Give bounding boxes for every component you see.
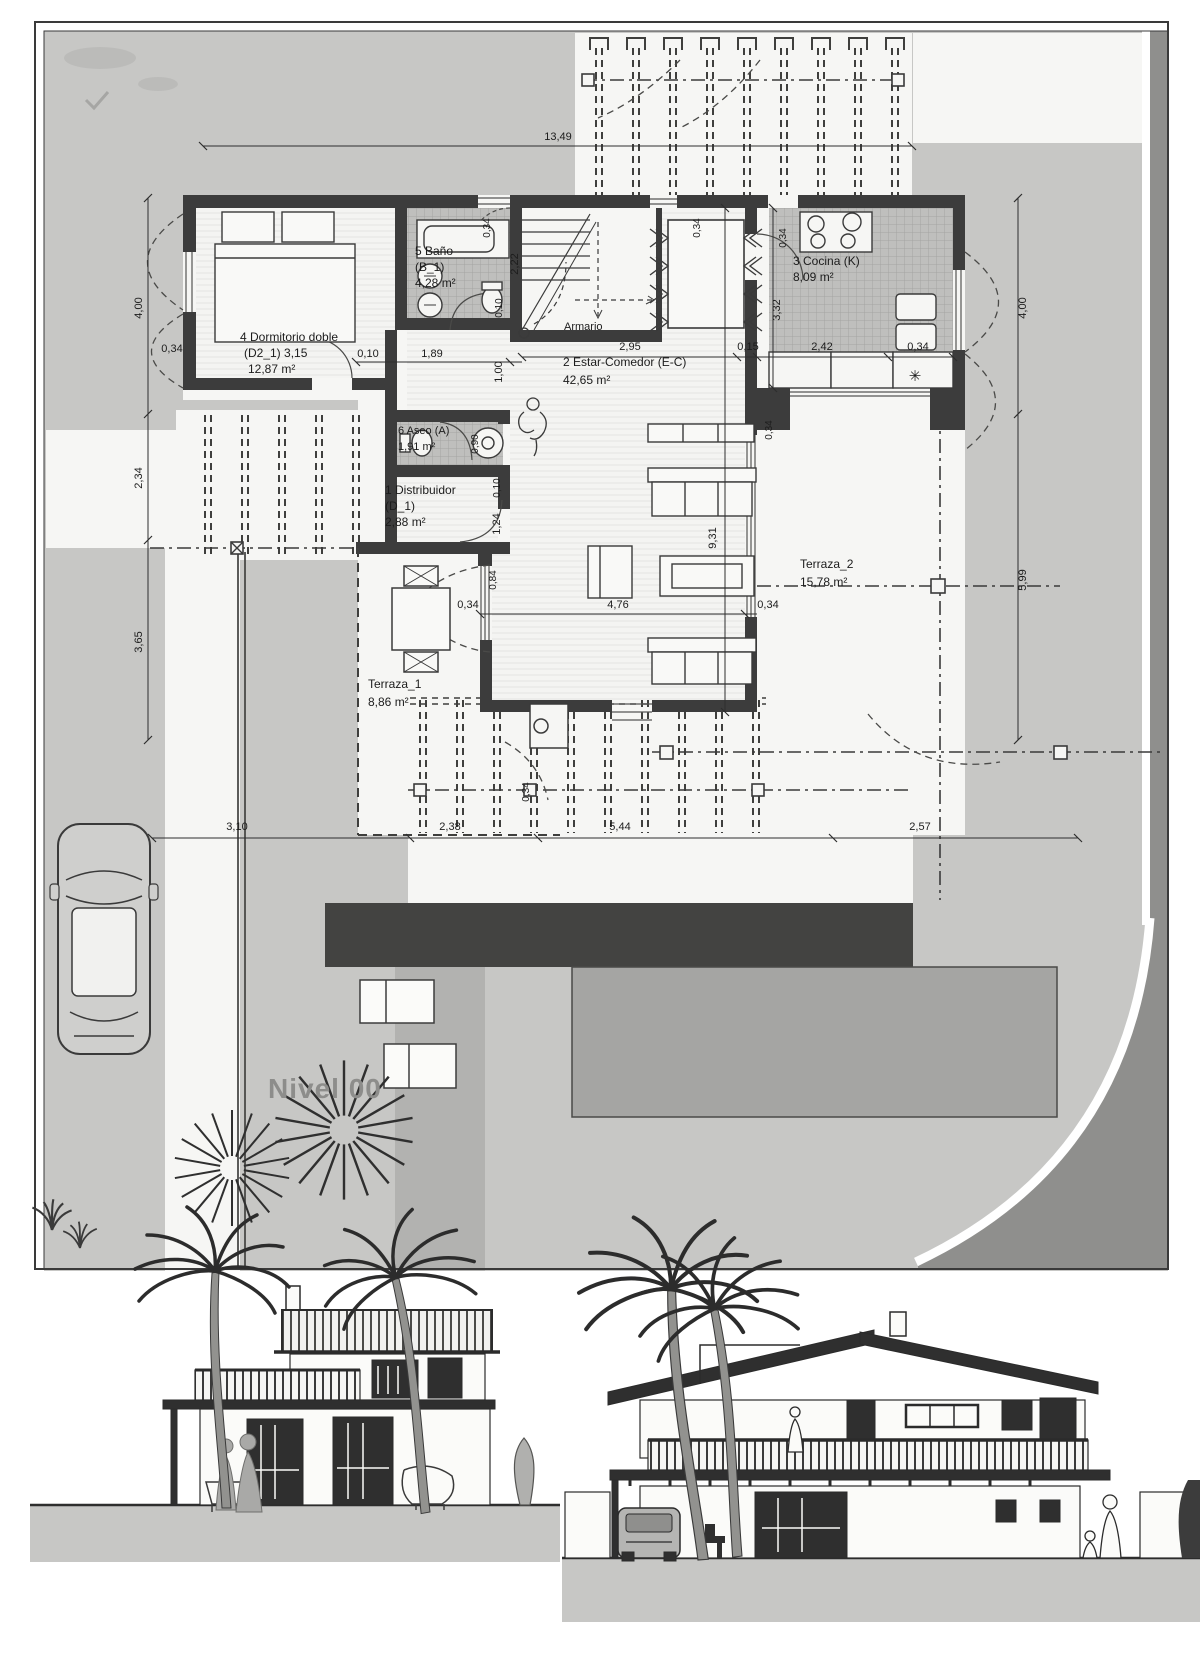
dim-kitchen-4: 0,34 — [907, 341, 928, 353]
sun-lounger — [384, 1044, 456, 1088]
label-dormitorio: 4 Dormitorio doble — [240, 330, 338, 344]
car-front-view — [618, 1508, 680, 1561]
shed-roof-left — [608, 1330, 874, 1405]
label-distribuidor: 1 Distribuidor — [385, 483, 456, 497]
striped-roof — [282, 1310, 492, 1352]
label-distribuidor-code: (D_1) — [385, 499, 415, 513]
label-aseo: 6 Aseo (A) — [398, 425, 449, 437]
label-estar-area: 42,65 m² — [563, 373, 610, 387]
dim-right-bottom: 5,99 — [1017, 569, 1029, 590]
elevation-left — [30, 1286, 560, 1562]
dim-stair-width: 1,00 — [493, 361, 505, 382]
label-terraza1-area: 8,86 m² — [368, 695, 409, 709]
shed-roof-right — [860, 1332, 1098, 1394]
appliance-symbol: ✳ — [909, 368, 922, 385]
dim-right-top: 4,00 — [1017, 297, 1029, 318]
dim-kitchen-door: 0,34 — [778, 228, 789, 248]
dim-terrace-right: 0,34 — [757, 599, 778, 611]
dim-terrace-step: 0,84 — [488, 570, 499, 590]
dim-shower: 0,90 — [470, 434, 481, 454]
dim-bottom-2: 2,38 — [439, 821, 460, 833]
car-top-view — [50, 824, 158, 1054]
dim-total-width: 13,49 — [544, 131, 572, 143]
label-armario: Armario — [564, 321, 603, 333]
label-terraza2-area: 15,78 m² — [800, 575, 847, 589]
dim-left-top: 4,00 — [133, 297, 145, 318]
cypress-plant — [514, 1438, 534, 1505]
sun-lounger — [360, 980, 434, 1023]
bed — [215, 212, 355, 342]
dim-left-middle: 2,34 — [133, 467, 145, 488]
dim-bedroom-bath: 1,89 — [421, 348, 442, 360]
sliding-door — [755, 1492, 847, 1558]
dim-bottom-4: 2,57 — [909, 821, 930, 833]
label-bano: 5 Baño — [415, 244, 453, 258]
south-pillar — [530, 704, 568, 748]
upper-window — [428, 1358, 462, 1398]
pool — [572, 967, 1057, 1117]
dim-estar-depth: 9,31 — [707, 527, 719, 548]
curb-stripe — [1142, 31, 1150, 925]
label-dormitorio-code: (D2_1) 3,15 — [244, 346, 308, 360]
dim-left-wall: 0,34 — [161, 343, 182, 355]
dim-opening: 0,34 — [521, 782, 532, 802]
label-terraza1: Terraza_1 — [368, 677, 422, 691]
upper-window — [1002, 1400, 1032, 1430]
label-estar: 2 Estar-Comedor (E-C) — [563, 355, 686, 369]
dim-terraza2-wall: 0,34 — [764, 420, 775, 440]
dim-bath-wall: 0,10 — [494, 298, 505, 318]
dim-terrace-left: 0,34 — [457, 599, 478, 611]
label-cocina: 3 Cocina (K) — [793, 254, 860, 268]
dim-bath-depth: 2,22 — [509, 253, 521, 274]
label-terraza2: Terraza_2 — [800, 557, 854, 571]
dim-kitchen-3: 2,42 — [811, 341, 832, 353]
label-aseo-area: 1,91 m² — [398, 441, 436, 453]
dim-kitchen-1: 2,95 — [619, 341, 640, 353]
balcony-railing — [648, 1440, 1088, 1470]
dim-terrace-width: 4,76 — [607, 599, 628, 611]
dim-stair-door: 0,34 — [482, 218, 493, 238]
dim-bedroom-gap: 0,10 — [357, 348, 378, 360]
upper-door — [1040, 1398, 1076, 1444]
dim-left-bottom: 3,65 — [133, 631, 145, 652]
ground-band — [30, 1505, 560, 1562]
dim-kitchen-2: 0,15 — [737, 341, 758, 353]
label-bano-code: (B_1) — [415, 260, 444, 274]
dim-kitchen-depth: 3,32 — [771, 299, 783, 320]
ground-band — [562, 1558, 1200, 1622]
dim-dining-door: 0,34 — [692, 218, 703, 238]
dim-bottom-3: 5,44 — [609, 821, 630, 833]
label-bano-area: 4,28 m² — [415, 276, 456, 290]
label-dormitorio-area: 12,87 m² — [248, 362, 295, 376]
label-cocina-area: 8,09 m² — [793, 270, 834, 284]
scanned-plan-page: Nivel 00 — [0, 0, 1200, 1678]
label-distribuidor-area: 2,88 m² — [385, 515, 426, 529]
floor-plan-drawing: Nivel 00 — [0, 0, 1200, 1678]
level-label: Nivel 00 — [268, 1073, 382, 1104]
dim-aseo-wall: 0,10 — [492, 478, 503, 498]
deck-dark-band — [325, 903, 913, 967]
dim-bottom-1: 3,10 — [226, 821, 247, 833]
dim-distribuidor-depth: 1,24 — [491, 513, 503, 534]
veranda-roof — [163, 1400, 495, 1409]
